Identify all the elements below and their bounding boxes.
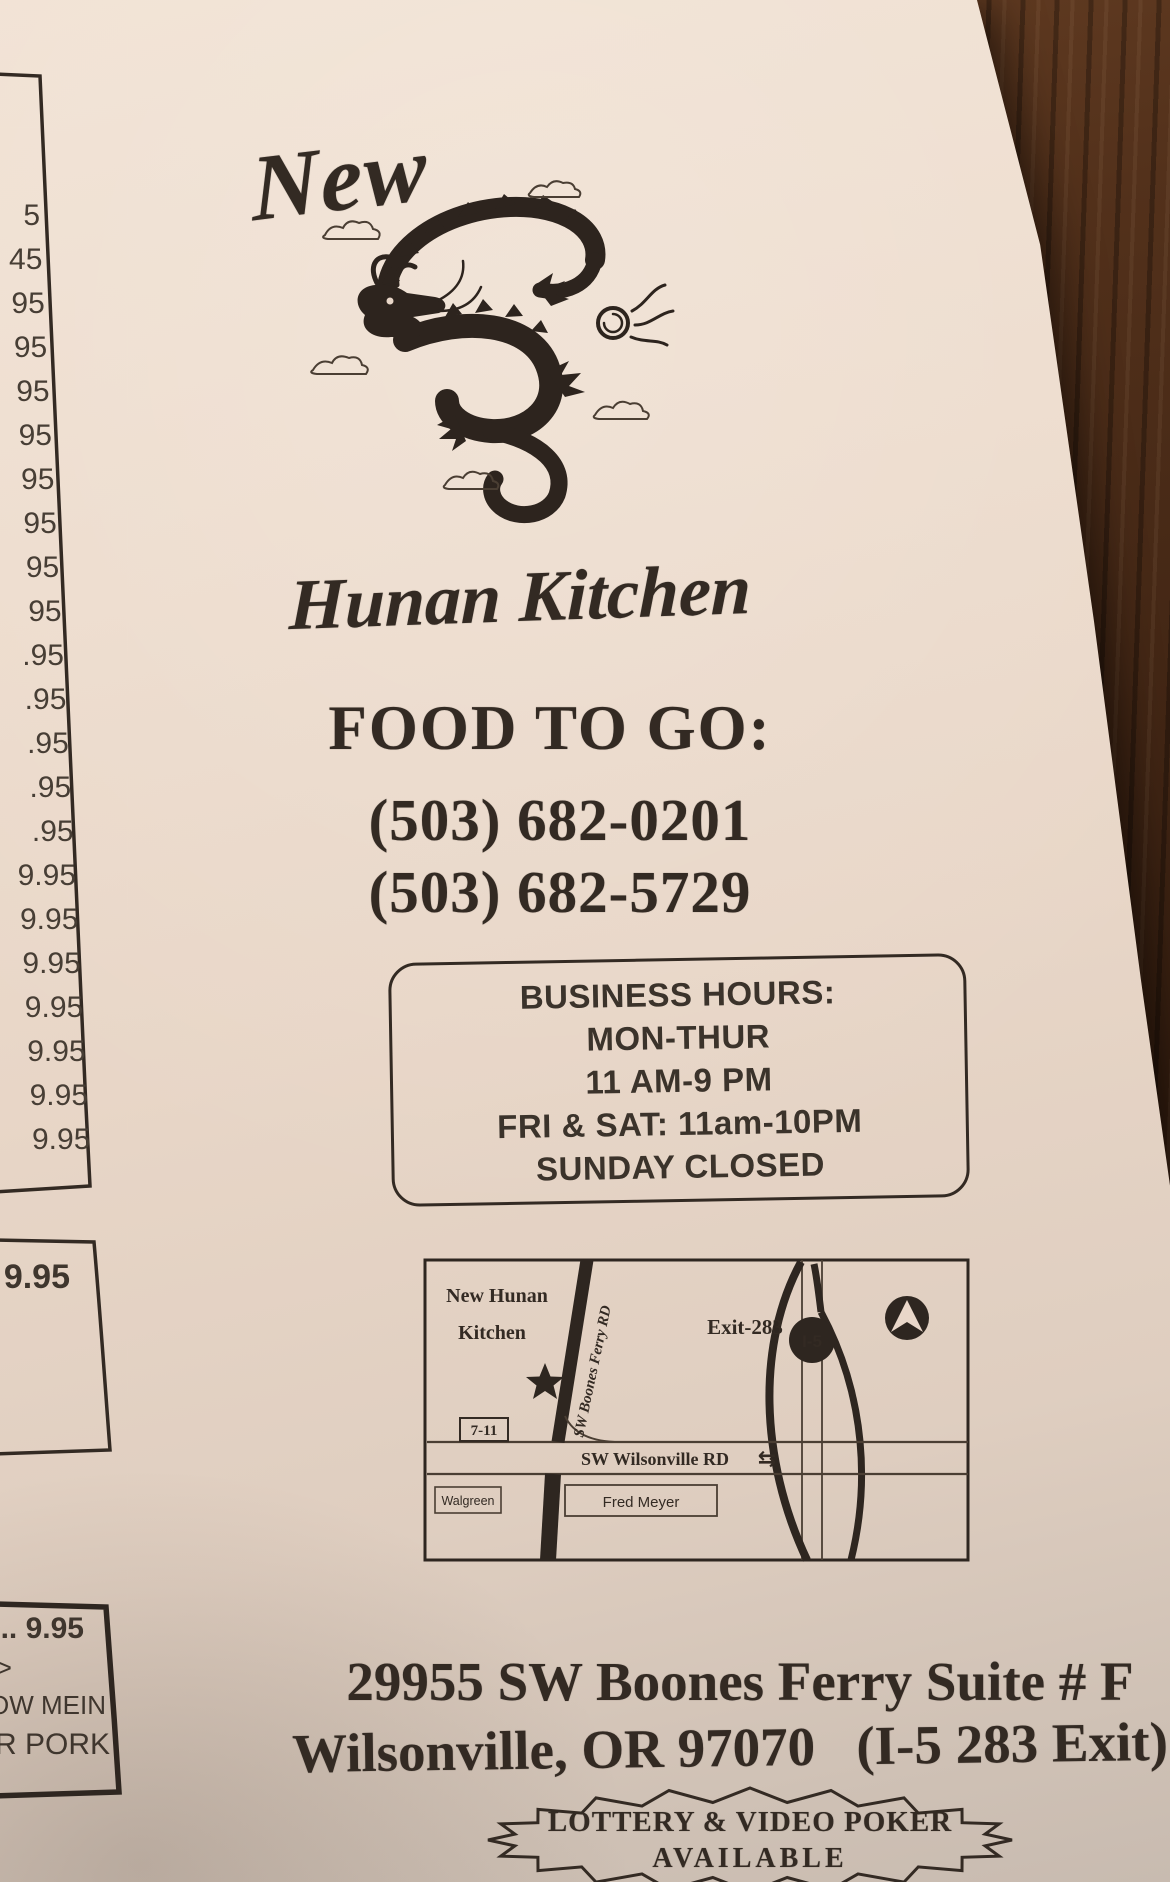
- fred-meyer-label: Fred Meyer: [603, 1494, 680, 1511]
- phone-number-1: (503) 682-0201: [200, 786, 920, 855]
- menu-price-fragment: 9.95: [0, 1080, 88, 1112]
- menu-text-fragment: >: [0, 1652, 12, 1684]
- menu-price-fragment: .. 9.95: [0, 1612, 84, 1646]
- exit-283-label: Exit-283: [707, 1315, 783, 1339]
- menu-price-fragment: 95: [0, 376, 50, 408]
- business-hours-box: BUSINESS HOURS: MON-THUR 11 AM-9 PM FRI …: [388, 953, 970, 1207]
- menu-price-fragment: 95: [0, 596, 62, 628]
- walgreen-label: Walgreen: [441, 1494, 494, 1508]
- menu-price-fragment: 95: [0, 332, 47, 364]
- menu-price-fragment: 9.95: [0, 948, 81, 980]
- menu-price-fragment: .95: [0, 640, 64, 672]
- menu-price-fragment: 95: [0, 464, 54, 496]
- lottery-line-1: LOTTERY & VIDEO POKER: [470, 1806, 1030, 1839]
- menu-price-fragment: 9.95: [0, 1124, 90, 1156]
- menu-price-fragment: .95: [0, 816, 74, 848]
- menu-price-fragment: 9.95: [0, 904, 78, 936]
- boones-ferry-road-south: [548, 1474, 553, 1560]
- wilsonville-road-label: SW Wilsonville RD: [581, 1449, 729, 1469]
- photo-of-menu: 5459595959595959595.95.95.95.95.959.959.…: [0, 0, 1170, 1882]
- brand-name: Hunan Kitchen: [150, 543, 891, 652]
- menu-price-fragment: 9.95: [0, 992, 83, 1024]
- map-business-label-line2: Kitchen: [458, 1322, 526, 1344]
- star-icon: [526, 1363, 564, 1399]
- lottery-line-2: AVAILABLE: [470, 1843, 1030, 1875]
- dragon-illustration: [295, 165, 685, 525]
- dragon-eye: [387, 298, 394, 305]
- menu-price-fragment: 45: [0, 244, 42, 276]
- food-to-go-heading: FOOD TO GO:: [200, 692, 900, 765]
- menu-price-fragment: 9.95: [0, 860, 76, 892]
- menu-text-fragment: HOW MEIN: [0, 1690, 106, 1721]
- two-way-arrows-icon: ⇆: [758, 1447, 776, 1472]
- menu-price-fragment: 95: [0, 288, 45, 320]
- location-map: I-5 New Hunan Kitchen SW Boones Ferry RD…: [415, 1248, 980, 1573]
- menu-price-fragment: 9.95: [0, 1258, 70, 1297]
- menu-paper-wrap: 5459595959595959595.95.95.95.95.959.959.…: [0, 0, 1170, 1882]
- compass-north-icon: [885, 1296, 929, 1340]
- menu-price-fragment: .95: [0, 728, 69, 760]
- menu-price-fragment: 95: [0, 552, 59, 584]
- menu-price-fragment: .95: [0, 684, 66, 716]
- phone-number-2: (503) 682-5729: [200, 858, 920, 927]
- menu-price-fragment: .95: [0, 772, 71, 804]
- i5-badge-label: I-5: [802, 1332, 822, 1351]
- address-line-2: Wilsonville, OR 97070 (I-5 283 Exit): [230, 1709, 1170, 1786]
- menu-price-fragment: 9.95: [0, 1036, 86, 1068]
- menu-paper: 5459595959595959595.95.95.95.95.959.959.…: [0, 0, 1170, 1882]
- menu-text-fragment: R PORK: [0, 1728, 110, 1762]
- menu-price-fragment: 5: [0, 200, 40, 232]
- hours-line: SUNDAY CLOSED: [394, 1140, 967, 1193]
- left-page-box-borders: [0, 0, 180, 1882]
- menu-price-fragment: 95: [0, 420, 52, 452]
- seven-eleven-label: 7-11: [471, 1423, 498, 1439]
- menu-price-fragment: 95: [0, 508, 57, 540]
- address-line-1: 29955 SW Boones Ferry Suite # F: [310, 1650, 1170, 1713]
- map-business-label-line1: New Hunan: [446, 1285, 548, 1307]
